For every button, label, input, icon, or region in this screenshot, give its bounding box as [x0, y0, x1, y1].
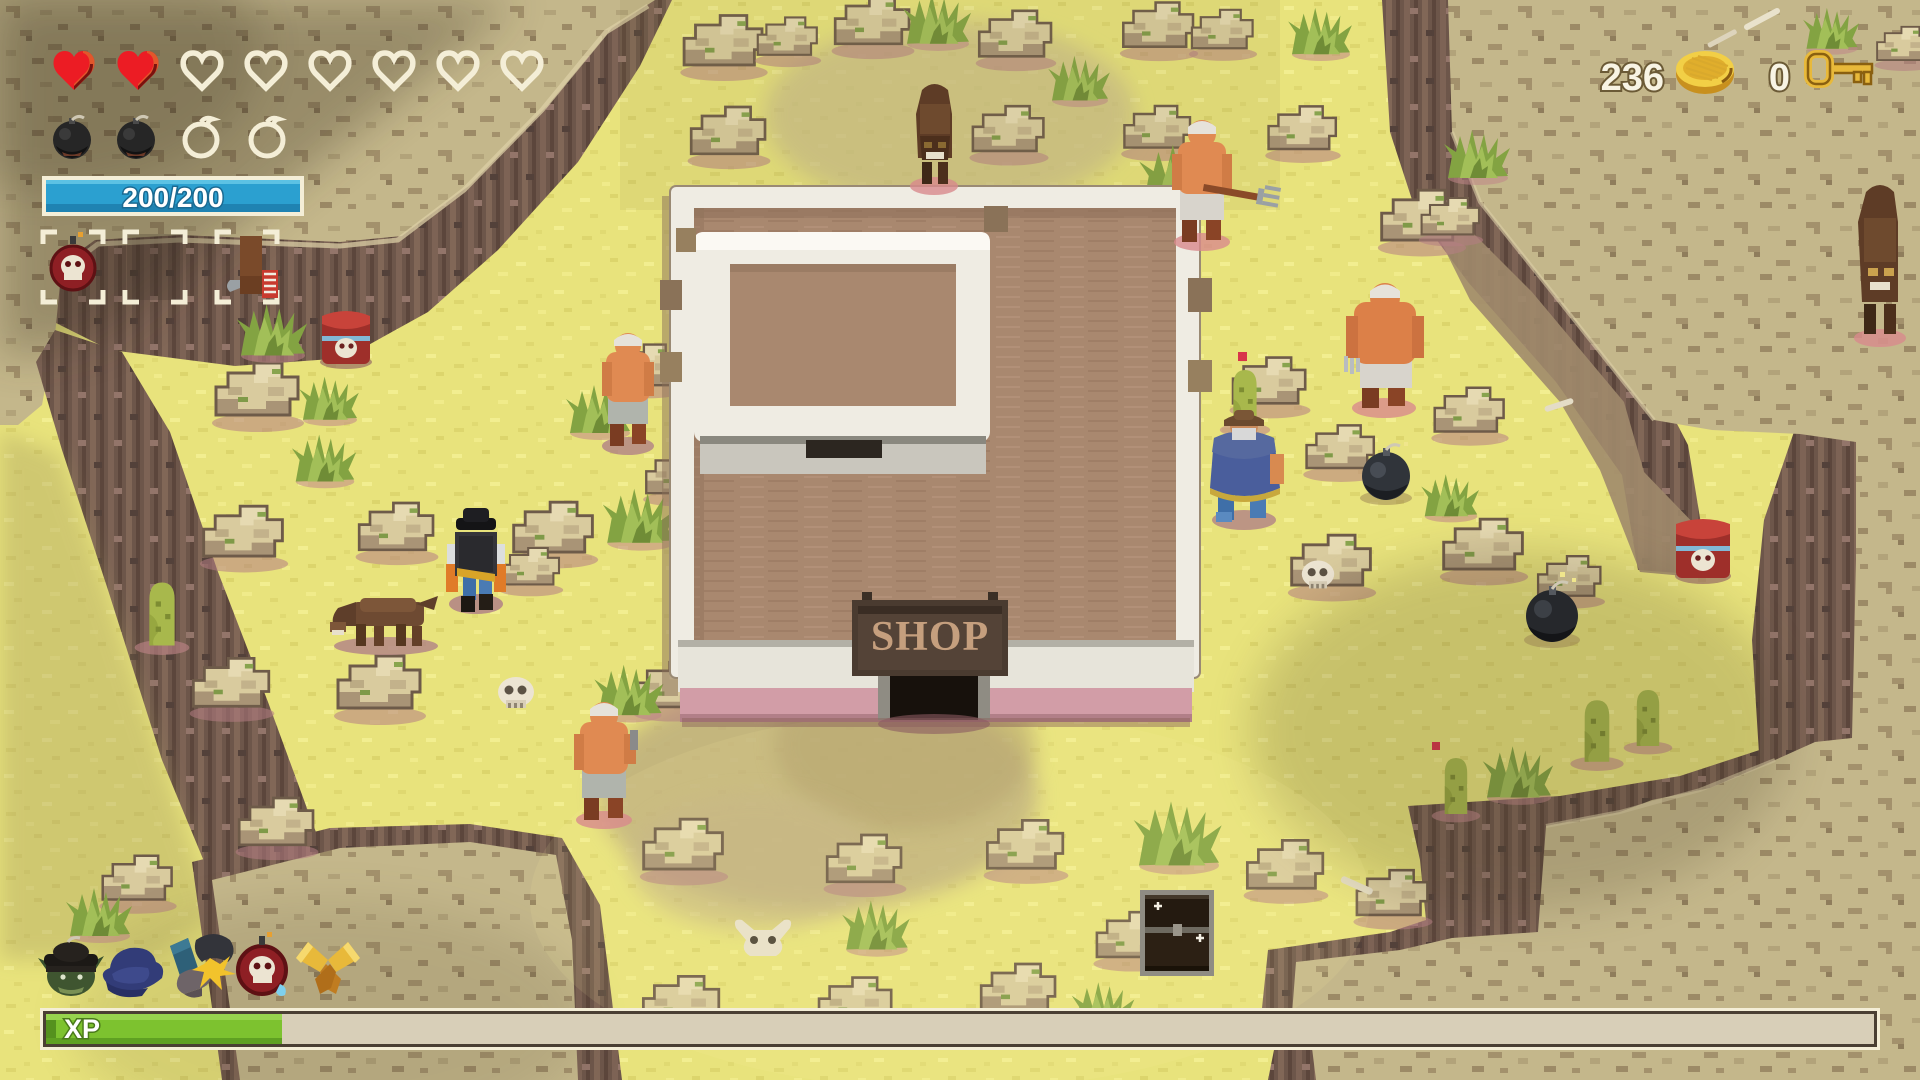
svg-text:0: 0 — [1769, 57, 1790, 99]
svg-text:XP: XP — [64, 1014, 100, 1044]
svg-text:236: 236 — [1601, 57, 1664, 99]
svg-text:200/200: 200/200 — [122, 182, 223, 213]
svg-text:SHOP: SHOP — [871, 614, 989, 660]
